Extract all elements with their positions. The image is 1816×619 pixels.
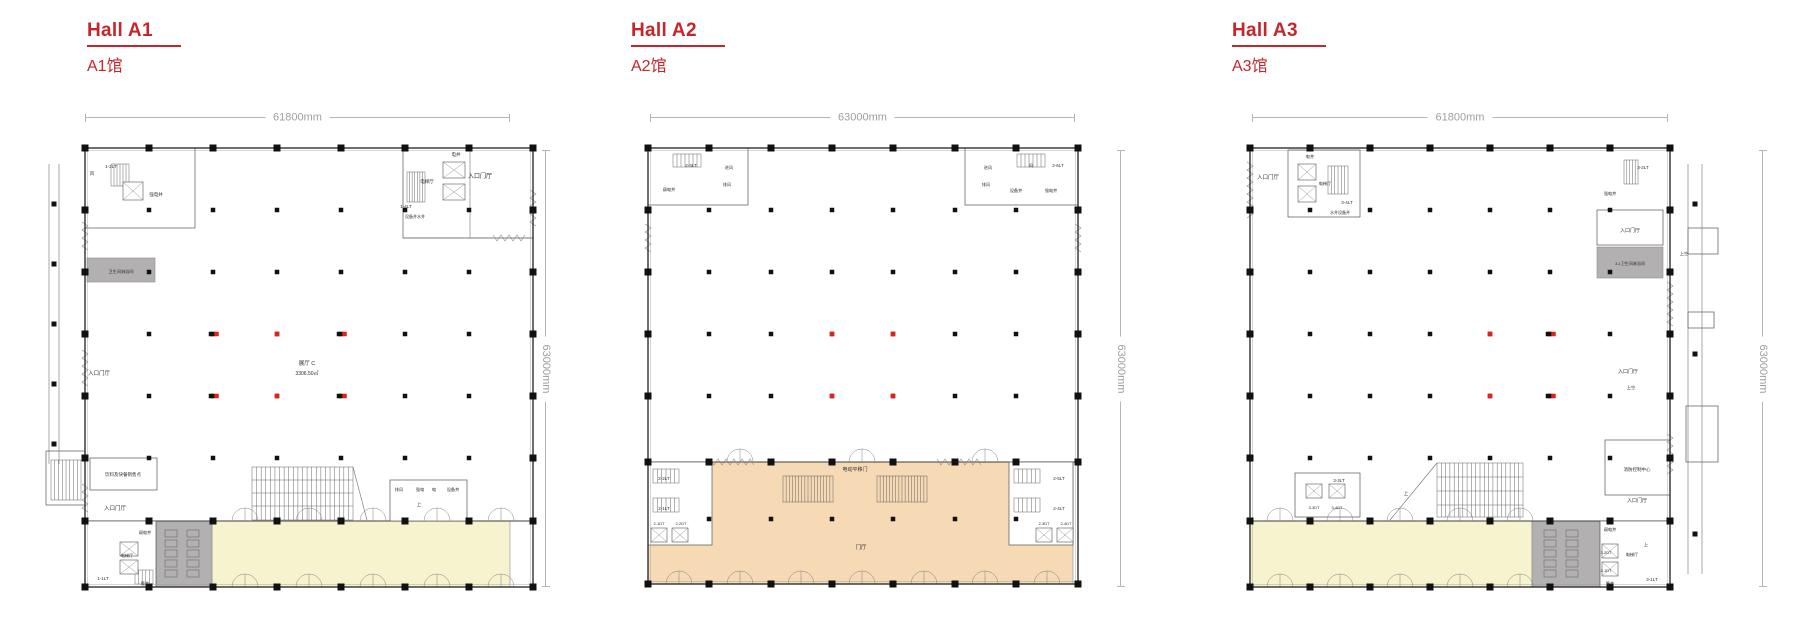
title-underline (87, 45, 181, 47)
floor-plan-sheet: { "colors": { "accent": "#c4262c", "dim_… (0, 0, 1816, 619)
svg-text:入口门厅: 入口门厅 (88, 369, 111, 377)
svg-text:进风: 进风 (984, 164, 993, 171)
svg-text:2-2LT: 2-2LT (658, 476, 670, 481)
svg-text:1-4LT: 1-4LT (400, 204, 412, 209)
svg-text:管井: 管井 (141, 580, 149, 587)
svg-text:强电井: 强电井 (149, 191, 163, 198)
svg-text:卫生间淋浴间: 卫生间淋浴间 (108, 268, 133, 275)
svg-text:弱电井: 弱电井 (663, 186, 676, 193)
svg-text:2-4LT: 2-4LT (1053, 506, 1065, 511)
svg-text:入口门厅: 入口门厅 (468, 172, 492, 180)
svg-text:水井设备井: 水井设备井 (1330, 209, 1350, 215)
svg-text:电梯厅: 电梯厅 (1626, 551, 1639, 558)
title-underline (631, 45, 725, 47)
width-dimension: 61800mm (85, 117, 510, 118)
svg-text:上空: 上空 (1680, 250, 1688, 256)
svg-text:强电: 强电 (416, 486, 425, 493)
hall-a2-panel: 2-3LT进风排风弱电井风2-6LT进风排风设备井强电井电动平移门门厅2-2LT… (615, 14, 1215, 619)
svg-text:3-4DT: 3-4DT (1331, 505, 1343, 510)
svg-text:2-6LT: 2-6LT (1052, 163, 1064, 168)
hall-a3-panel: 入口门厅电井电梯厅3-4LT水井设备井3-2LT强电井入口门厅3-1卫生间淋浴间… (1200, 14, 1800, 619)
svg-text:3-3DT: 3-3DT (1308, 505, 1320, 510)
svg-text:2-3DT: 2-3DT (1038, 521, 1050, 526)
svg-text:电梯厅: 电梯厅 (420, 178, 434, 185)
svg-text:门厅: 门厅 (855, 543, 867, 551)
hall-subtitle: A1馆 (87, 52, 615, 76)
svg-text:3-3LT: 3-3LT (1333, 478, 1345, 483)
svg-text:2-4DT: 2-4DT (1060, 521, 1072, 526)
svg-text:弱电井: 弱电井 (139, 529, 152, 536)
svg-text:3-2DT: 3-2DT (1600, 550, 1612, 555)
svg-text:强电井: 强电井 (1604, 190, 1617, 197)
hall-a1-header: Hall A1 A1馆 (87, 20, 615, 76)
svg-text:1-2LT: 1-2LT (105, 164, 117, 169)
height-dimension: 63000mm (545, 150, 546, 587)
svg-text:排风: 排风 (723, 181, 732, 188)
hall-a1-panel: 电井1-2LT风电梯厅强电井入口门厅1-4LT设备井水井卫生间淋浴间入口门厅展厅… (15, 14, 615, 619)
svg-text:2-1DT: 2-1DT (653, 521, 665, 526)
svg-text:排风: 排风 (395, 486, 404, 493)
svg-text:设备井水井: 设备井水井 (405, 213, 425, 219)
floor-plan-a2: 2-3LT进风排风弱电井风2-6LT进风排风设备井强电井电动平移门门厅2-2LT… (615, 14, 1215, 614)
svg-text:上空: 上空 (1627, 384, 1635, 390)
width-dimension: 61800mm (1252, 117, 1668, 118)
height-dimension: 63000mm (1762, 150, 1763, 587)
svg-text:饮料及快餐销售点: 饮料及快餐销售点 (105, 471, 141, 478)
height-dimension: 63000mm (1120, 150, 1121, 587)
svg-text:3306.50㎡: 3306.50㎡ (295, 370, 318, 377)
svg-text:上: 上 (417, 501, 422, 507)
svg-text:强电井: 强电井 (1045, 187, 1058, 194)
svg-text:入口门厅: 入口门厅 (1627, 497, 1647, 504)
svg-text:设备井: 设备井 (1010, 187, 1023, 194)
svg-text:弱电井: 弱电井 (1604, 526, 1617, 533)
hall-subtitle: A2馆 (631, 52, 1215, 76)
svg-text:电动平移门: 电动平移门 (842, 466, 867, 473)
svg-text:入口门厅: 入口门厅 (1620, 227, 1640, 234)
svg-text:2-1LT: 2-1LT (658, 506, 670, 511)
svg-text:管井: 管井 (1606, 580, 1614, 587)
svg-text:入口门厅: 入口门厅 (1618, 368, 1638, 375)
svg-text:电梯厅: 电梯厅 (121, 552, 134, 559)
svg-text:入口门厅: 入口门厅 (1257, 173, 1280, 181)
svg-text:消防控制中心: 消防控制中心 (1624, 466, 1651, 473)
floor-plan-a1: 电井1-2LT风电梯厅强电井入口门厅1-4LT设备井水井卫生间淋浴间入口门厅展厅… (15, 14, 615, 614)
hall-title: Hall A1 (87, 20, 615, 42)
svg-text:2-5LT: 2-5LT (1053, 476, 1065, 481)
hall-title: Hall A3 (1232, 20, 1800, 42)
width-dimension: 63000mm (650, 117, 1075, 118)
hall-a2-header: Hall A2 A2馆 (631, 20, 1215, 76)
svg-text:电井: 电井 (452, 151, 461, 158)
svg-text:排风: 排风 (982, 181, 991, 188)
svg-text:3-2LT: 3-2LT (1637, 165, 1649, 170)
hall-subtitle: A3馆 (1232, 52, 1800, 76)
svg-text:上: 上 (1404, 490, 1409, 496)
svg-text:3-1卫生间淋浴间: 3-1卫生间淋浴间 (1615, 260, 1645, 266)
svg-text:3-1DT: 3-1DT (1600, 568, 1612, 573)
svg-text:2-2DT: 2-2DT (675, 521, 687, 526)
svg-text:电梯厅: 电梯厅 (1319, 180, 1332, 187)
svg-text:设备井: 设备井 (447, 486, 460, 493)
svg-text:2-3LT: 2-3LT (685, 163, 697, 168)
svg-text:上: 上 (1644, 541, 1648, 547)
floor-plan-a3: 入口门厅电井电梯厅3-4LT水井设备井3-2LT强电井入口门厅3-1卫生间淋浴间… (1200, 14, 1800, 614)
svg-text:1-1LT: 1-1LT (97, 576, 109, 581)
svg-text:入口门厅: 入口门厅 (104, 504, 127, 512)
hall-title: Hall A2 (631, 20, 1215, 42)
svg-text:展厅 C: 展厅 C (299, 360, 316, 367)
hall-a3-header: Hall A3 A3馆 (1232, 20, 1800, 76)
svg-text:电井: 电井 (1306, 153, 1314, 160)
svg-text:3-4LT: 3-4LT (1341, 200, 1353, 205)
title-underline (1232, 45, 1326, 47)
svg-text:进风: 进风 (725, 164, 734, 171)
svg-text:3-1LT: 3-1LT (1646, 577, 1658, 582)
